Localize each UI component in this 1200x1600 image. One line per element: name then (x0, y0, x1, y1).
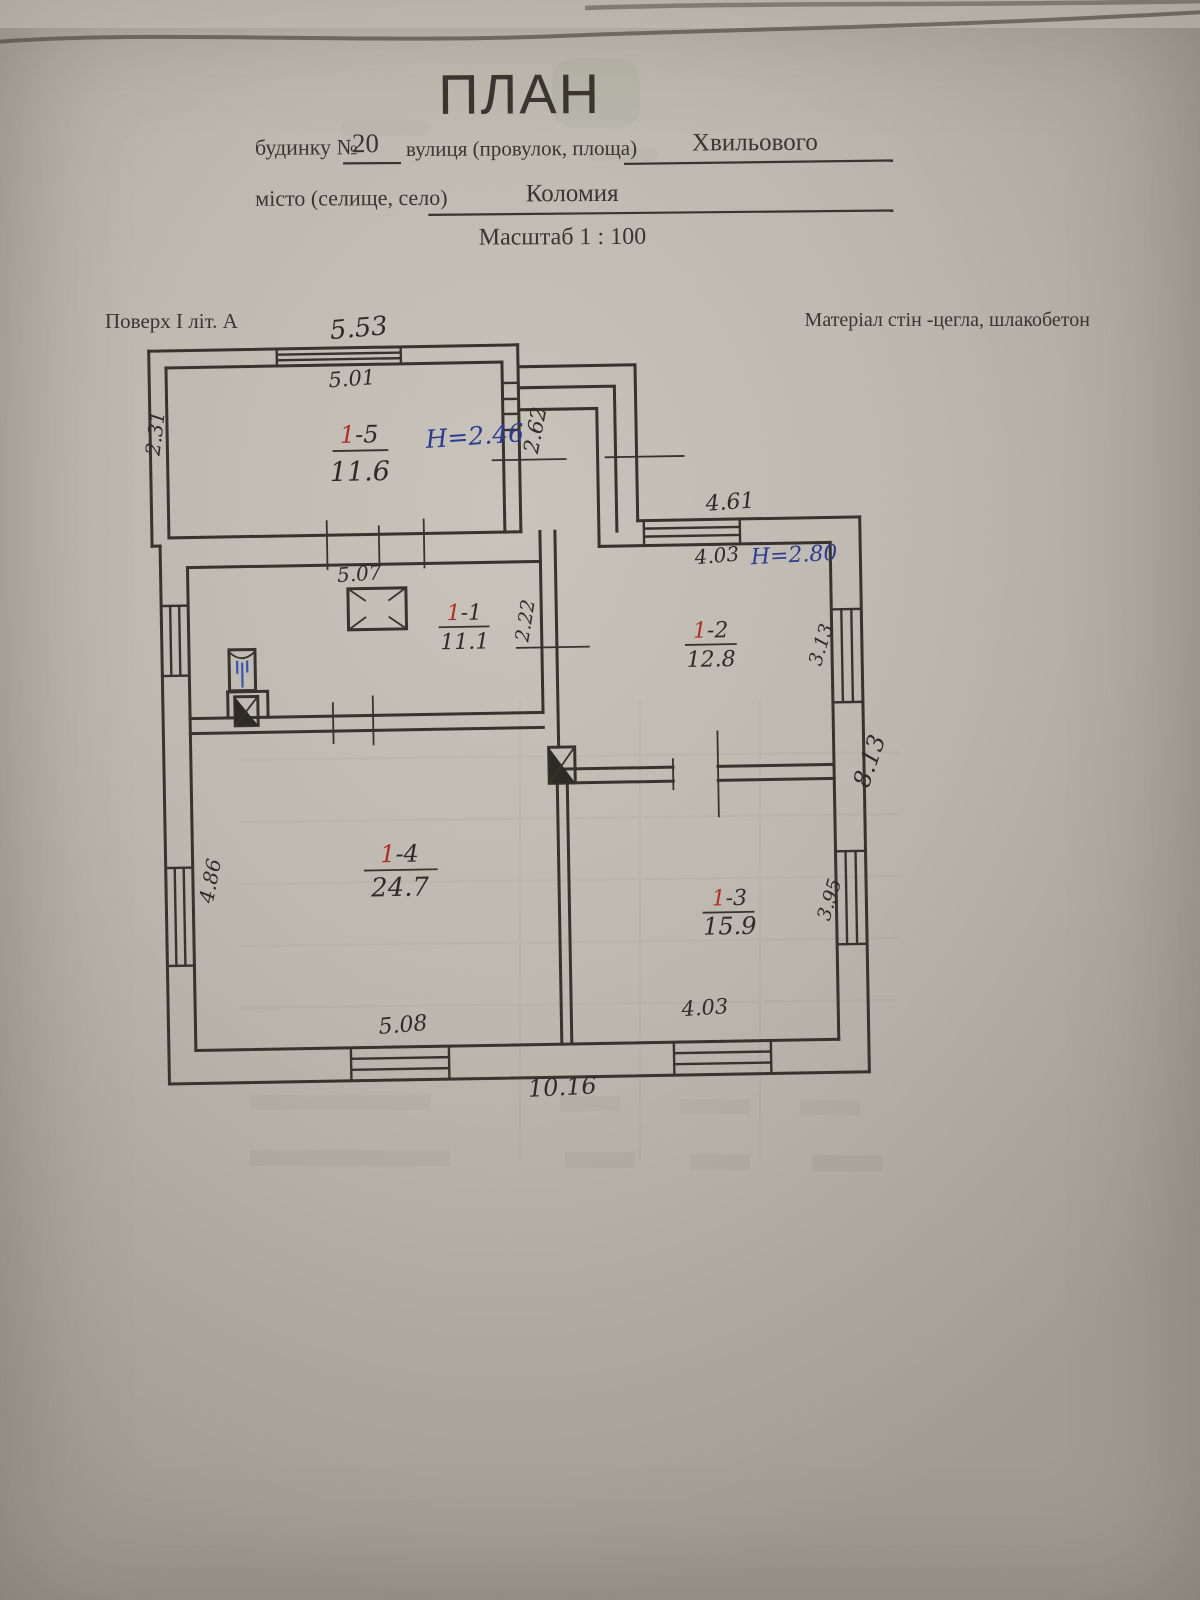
house-label: будинку № (255, 134, 358, 160)
room-1-4-number-suffix: -4 (395, 840, 419, 868)
street-label: вулиця (провулок, площа) (406, 136, 637, 161)
room-1-2-area: 12.8 (686, 647, 735, 673)
room-1-2-height: H=2.80 (749, 541, 838, 571)
dim-room1-width: 5.07 (336, 560, 382, 587)
dim-room2-width: 4.03 (693, 541, 740, 569)
room-1-5-area: 11.6 (329, 456, 390, 488)
dim-room5-width: 5.01 (328, 365, 376, 392)
room-1-1-area: 11.1 (440, 629, 489, 655)
room-1-5-number-prefix: 1 (340, 421, 356, 449)
room-1-3-number-suffix: -3 (725, 886, 747, 911)
room-1-1-number-suffix: -1 (460, 600, 482, 625)
scale-note: Масштаб 1 : 100 (479, 224, 647, 251)
dim-room3-width: 4.03 (680, 994, 729, 1021)
dim-right-top: 4.61 (704, 488, 756, 516)
dim-bottom-overall: 10.16 (527, 1071, 597, 1103)
floor-note: Поверх І літ. А (105, 309, 239, 333)
room-1-1-number-prefix: 1 (446, 601, 460, 626)
svg-text:1-5: 1-5 (340, 420, 379, 449)
plan-drawing: ПЛАН будинку № 20 вулиця (провулок, площ… (0, 0, 1200, 1600)
scanned-plan-page: ПЛАН будинку № 20 вулиця (провулок, площ… (0, 0, 1200, 1600)
dim-top-overall: 5.53 (329, 311, 389, 346)
material-note: Матеріал стін -цегла, шлакобетон (805, 309, 1091, 331)
room-1-2-number-prefix: 1 (693, 619, 707, 644)
room-1-4-number-prefix: 1 (380, 840, 396, 868)
city-value: Коломия (526, 180, 619, 207)
page-title: ПЛАН (438, 62, 601, 126)
svg-text:1-2: 1-2 (693, 618, 729, 644)
room-1-5-number-suffix: -5 (355, 420, 379, 448)
city-label: місто (селище, село) (255, 185, 447, 211)
dim-room4-width: 5.08 (378, 1011, 429, 1040)
svg-text:1-1: 1-1 (446, 600, 482, 626)
svg-text:1-3: 1-3 (711, 886, 747, 912)
room-1-4-area: 24.7 (370, 872, 430, 903)
room-1-2-number-suffix: -2 (707, 618, 729, 643)
svg-text:1-4: 1-4 (380, 840, 419, 869)
street-value: Хвильового (692, 129, 818, 157)
room-1-3-area: 15.9 (703, 912, 757, 941)
house-number-value: 20 (352, 128, 379, 158)
room-1-3-number-prefix: 1 (711, 886, 725, 911)
